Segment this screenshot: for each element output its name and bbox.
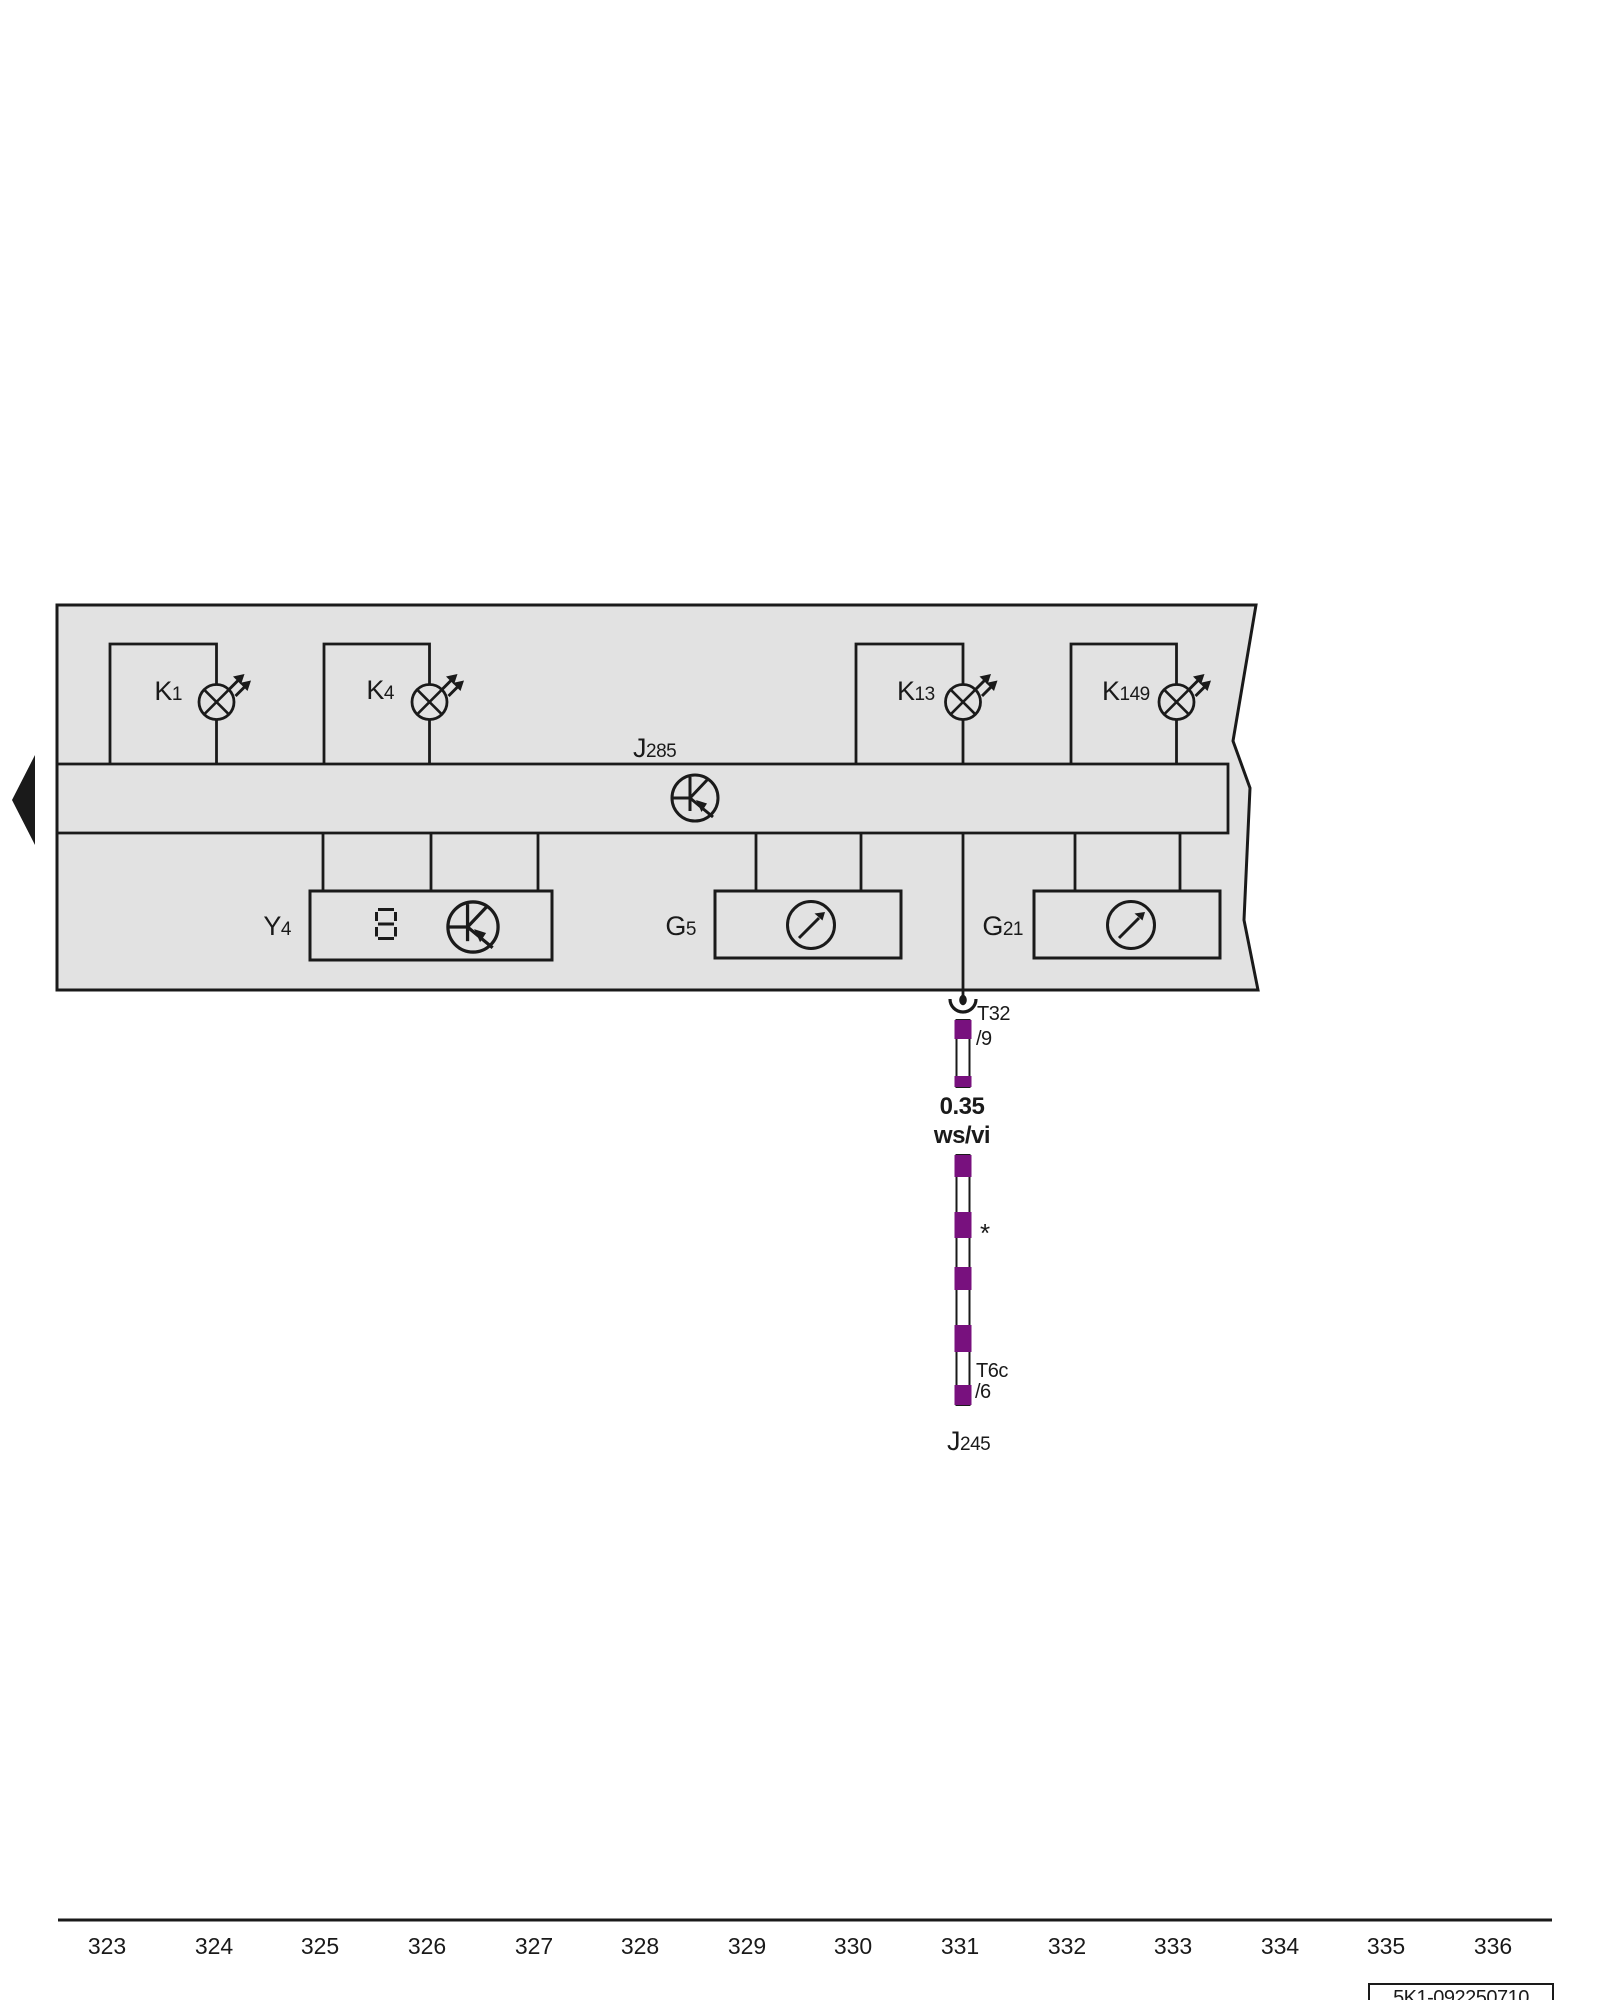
connector-pin-dot [959, 995, 967, 1005]
track-number: 331 [941, 1935, 979, 1958]
continuation-arrow-icon [12, 755, 35, 845]
track-number: 329 [728, 1935, 766, 1958]
k4-label: K4 [366, 677, 394, 704]
track-number: 324 [195, 1935, 233, 1958]
t6c-connector-label: T6c [976, 1361, 1008, 1381]
drawing-number: 5K1-092250710 [1393, 1988, 1529, 2000]
track-number: 327 [515, 1935, 553, 1958]
striped-wire-upper [955, 1020, 972, 1087]
wiring-diagram-page: K1 K4 K13 K149 J285 Y4 G5 G21 J245 T32 /… [0, 0, 1600, 2000]
diagram-graphics [0, 0, 1600, 2000]
y4-label: Y4 [263, 913, 291, 940]
track-number: 325 [301, 1935, 339, 1958]
k1-label: K1 [154, 678, 182, 705]
track-number: 332 [1048, 1935, 1086, 1958]
wire-cross-section-label: 0.35 [940, 1095, 985, 1119]
k149-label: K149 [1102, 678, 1150, 705]
track-number: 335 [1367, 1935, 1405, 1958]
track-number: 328 [621, 1935, 659, 1958]
j245-label: J245 [947, 1428, 990, 1455]
g5-label: G5 [665, 913, 696, 940]
control-unit-band [57, 605, 1258, 990]
g21-label: G21 [982, 913, 1023, 940]
t32-connector-label: T32 [977, 1004, 1010, 1024]
k13-label: K13 [897, 678, 935, 705]
wire-footnote-mark: * [980, 1220, 990, 1246]
j285-label: J285 [633, 735, 676, 762]
drawing-number-box: 5K1-092250710 [1368, 1983, 1554, 2000]
wire-color-code-label: ws/vi [934, 1124, 990, 1148]
striped-wire-lower [955, 1155, 972, 1405]
track-number: 323 [88, 1935, 126, 1958]
t32-pin-label: /9 [976, 1029, 992, 1049]
track-number: 334 [1261, 1935, 1299, 1958]
track-number: 326 [408, 1935, 446, 1958]
t6c-pin-label: /6 [975, 1382, 991, 1402]
track-number: 333 [1154, 1935, 1192, 1958]
track-number: 336 [1474, 1935, 1512, 1958]
track-number: 330 [834, 1935, 872, 1958]
